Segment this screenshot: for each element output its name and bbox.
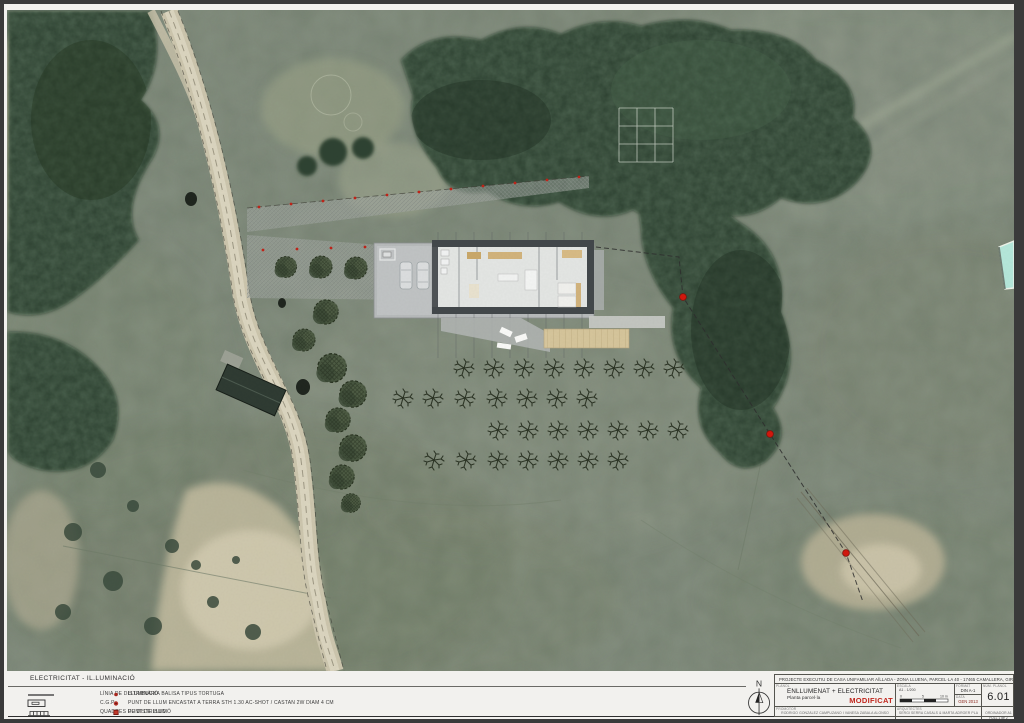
plan-subtitle: Planta parcel·la	[787, 696, 820, 701]
architect-cell: ARQUITECTES SERGI SERRA CASALS & MARTA A…	[896, 707, 982, 719]
sheet-of-cell: ORDINADOR A1 FULL 1 de 2	[982, 707, 1015, 719]
svg-text:5: 5	[922, 695, 924, 699]
sheet-number: 6.01	[982, 691, 1015, 703]
date-cell: DATA GEN 2013	[955, 695, 982, 706]
sheet-of: FULL 1 de 2	[982, 716, 1015, 720]
date-value: GEN 2013	[955, 699, 981, 704]
plan-title: ENLLUMENAT + ELECTRICITAT	[787, 688, 883, 695]
title-block-bottom-row: PROMOTOR RODRIGO GONZÁLEZ CAMPUZANO I VA…	[775, 706, 1013, 718]
legend-label: PUNT DE LLUM	[128, 709, 167, 715]
promoter-name: RODRIGO GONZÁLEZ CAMPUZANO I VANESA ZABA…	[775, 711, 895, 715]
status-stamp: MODIFICAT	[849, 696, 893, 705]
format-cell: FORMAT DIN A-1	[955, 684, 982, 695]
north-label: N	[756, 679, 762, 689]
sheet-number-label: NÚM. PLÀNOL	[983, 684, 1007, 688]
date-label: DATA	[956, 695, 965, 699]
legend-label: PUNT DE LLUM ENCASTAT A TERRA STH 1.30 A…	[128, 700, 334, 706]
cgp-symbol	[26, 699, 56, 708]
scale-cell: ESCALA A1 - 1/200 0 5 10 m	[896, 684, 955, 706]
sheet-number-cell: NÚM. PLÀNOL 6.01	[982, 684, 1015, 706]
scale-value: A1 - 1/200	[899, 688, 916, 692]
scale-bar: 0 5 10 m	[898, 694, 952, 705]
recessed-ground-light-symbol	[110, 699, 122, 708]
architect-name: SERGI SERRA CASALS & MARTA ADROER PLA	[896, 711, 981, 715]
north-arrow: N	[746, 676, 774, 718]
legend-title: ELECTRICITAT - IL.LUMINACIÓ	[30, 675, 135, 682]
cell-g-line1: ORDINADOR A1	[982, 711, 1015, 715]
svg-text:0: 0	[900, 695, 902, 699]
legend-label: LLUMINÀRIA BALISA TIPUS TORTUGA	[128, 691, 224, 697]
format-value: DIN A-1	[955, 688, 981, 693]
svg-text:10 m: 10 m	[940, 695, 948, 699]
architect-label: ARQUITECTES	[897, 707, 922, 711]
aerial-photo	[7, 10, 1014, 671]
drawing-sheet: ELECTRICITAT - IL.LUMINACIÓ LÍNIA DE DIS…	[4, 4, 1014, 719]
project-title: PROJECTE EXECUTIU DE CASA UNIFAMILIAR AÏ…	[775, 675, 1013, 684]
promoter-label: PROMOTOR	[776, 707, 796, 711]
promoter-cell: PROMOTOR RODRIGO GONZÁLEZ CAMPUZANO I VA…	[775, 707, 896, 719]
legend-divider	[8, 686, 746, 687]
balisa-light-symbol	[110, 690, 122, 699]
plan-title-cell: PLÀNOL ENLLUMENAT + ELECTRICITAT Planta …	[775, 684, 896, 706]
screenshot-stage: ELECTRICITAT - IL.LUMINACIÓ LÍNIA DE DIS…	[0, 0, 1024, 723]
photo-grain	[7, 10, 1014, 671]
title-block: N PROJECTE EXECUTIU DE CASA UNIFAMILIAR …	[746, 674, 1014, 719]
title-block-grid: PROJECTE EXECUTIU DE CASA UNIFAMILIAR AÏ…	[774, 674, 1014, 717]
distribution-line-symbol	[26, 690, 56, 699]
format-label: FORMAT	[956, 684, 970, 688]
